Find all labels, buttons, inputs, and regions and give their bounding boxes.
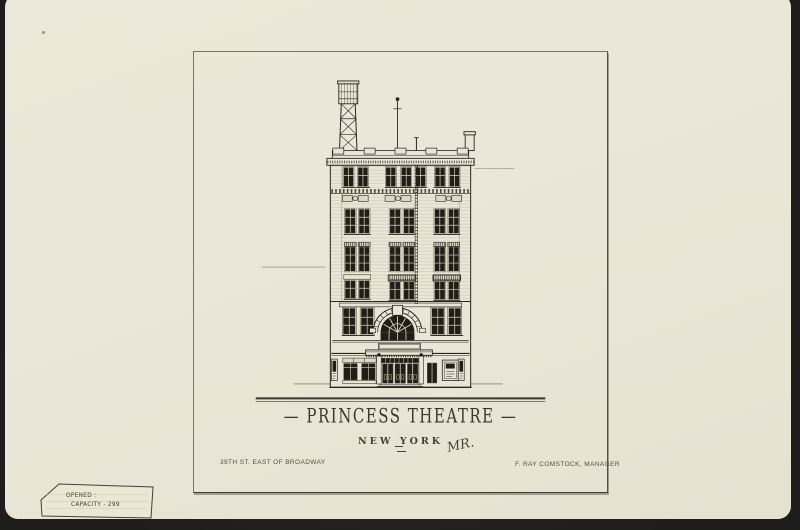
city-underscore-dash — [395, 446, 403, 447]
attic-windows — [342, 167, 460, 188]
main-cornice — [327, 158, 474, 165]
city-under-dash — [397, 451, 406, 452]
artwork-title: — PRINCESS THEATRE — — [194, 404, 607, 427]
frieze-plaques — [342, 195, 461, 201]
tag-outline — [41, 484, 153, 518]
tag-line-2: CAPACITY - 299 — [71, 502, 120, 508]
manager-caption: F. RAY COMSTOCK, MANAGER — [515, 461, 620, 468]
water-tower — [338, 81, 359, 151]
right-storefront — [427, 360, 458, 383]
scanned-photo-card: OPENED : CAPACITY - 299 — [0, 0, 800, 530]
drawing-frame: — PRINCESS THEATRE — NEW YORK MR. 39TH S… — [193, 51, 608, 493]
entrance-doors — [382, 358, 419, 383]
flagpole — [394, 98, 402, 151]
paper-card: OPENED : CAPACITY - 299 — [5, 0, 791, 519]
address-caption: 39TH ST. EAST OF BROADWAY — [220, 459, 326, 466]
paper-speck — [42, 31, 45, 34]
standpipe-above-roof — [414, 138, 418, 152]
catalog-tag: OPENED : CAPACITY - 299 — [36, 480, 160, 524]
tag-line-1: OPENED : — [66, 493, 96, 499]
